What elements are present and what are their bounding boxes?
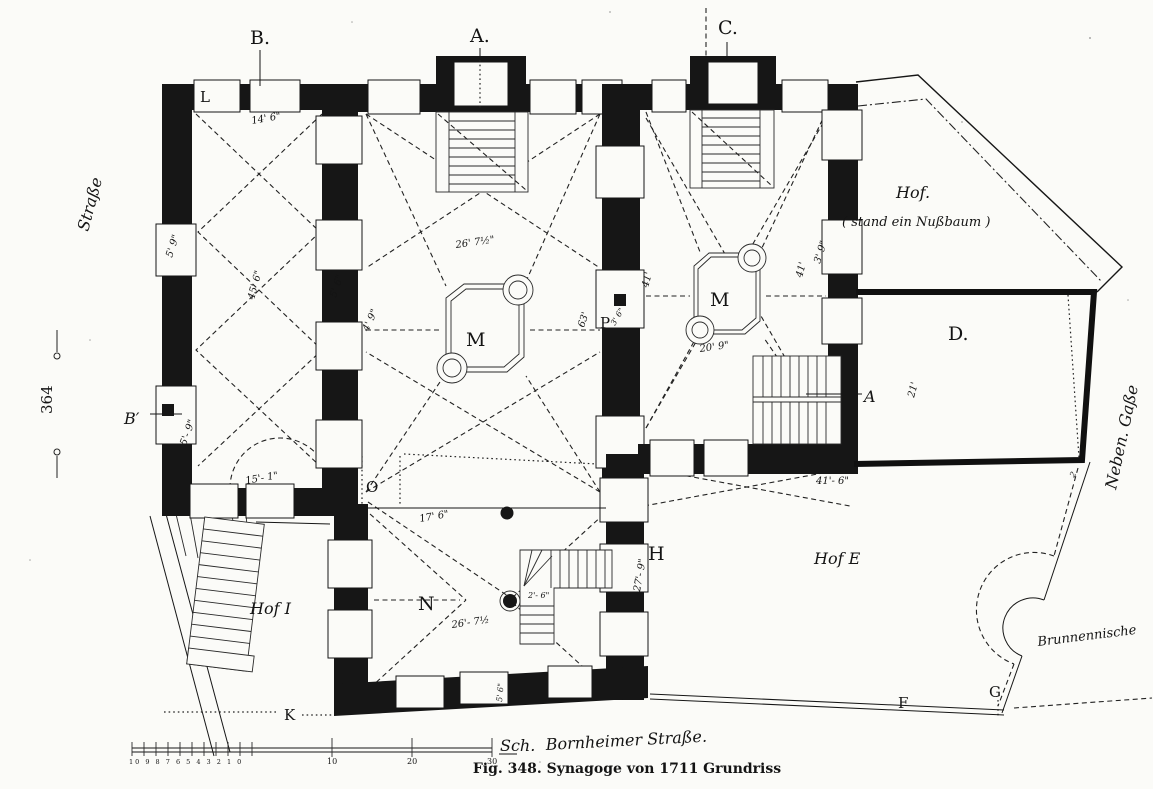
marker-o: O bbox=[366, 478, 378, 496]
window-opening bbox=[396, 676, 444, 708]
window-opening bbox=[316, 322, 362, 370]
gasse-line-lower bbox=[1002, 656, 1022, 713]
window-opening bbox=[548, 666, 592, 698]
entry-c-opening bbox=[708, 62, 758, 104]
window-opening bbox=[704, 440, 748, 476]
marker-k: K bbox=[284, 706, 296, 724]
scale-major-10: 10 bbox=[327, 757, 337, 766]
left-hall-vault-lines bbox=[196, 110, 330, 488]
stair-below-c bbox=[690, 110, 774, 188]
hof-i-label: Hof I bbox=[249, 599, 292, 618]
dim-hof-e-front: 41'- 6" bbox=[815, 476, 849, 487]
scale-unit-label: Sch. bbox=[500, 736, 535, 755]
dim-stair-width: 2'- 6" bbox=[527, 591, 549, 600]
marker-m-east: M bbox=[710, 289, 729, 311]
window-opening bbox=[246, 484, 294, 518]
dim-door-o: 17' 6" bbox=[419, 509, 450, 525]
stair-hof-i bbox=[187, 517, 271, 672]
marker-stair-a: A bbox=[862, 387, 876, 406]
marker-g: G bbox=[989, 683, 1001, 701]
wall-segment bbox=[334, 504, 368, 690]
marker-m-main: M bbox=[466, 329, 485, 351]
gasse-dashed-upper bbox=[1054, 468, 1078, 556]
section-marker-c: C. bbox=[718, 17, 738, 39]
dim-room-d: 21' bbox=[906, 381, 921, 400]
marker-f: F bbox=[898, 694, 908, 712]
dim-east-diag-e: 41' bbox=[794, 261, 809, 280]
west-hall-walls bbox=[156, 80, 362, 518]
marker-h: H bbox=[648, 543, 665, 565]
dim-room-n-diagonal: 26'- 7½ bbox=[450, 615, 490, 631]
hof-e-label: Hof E bbox=[813, 549, 861, 568]
page-number: 364 bbox=[38, 385, 56, 414]
marker-n: N bbox=[418, 593, 435, 615]
column-post bbox=[503, 594, 517, 608]
window-opening bbox=[822, 298, 862, 344]
street-edge-dashed bbox=[1014, 698, 1152, 708]
entry-a-opening bbox=[454, 62, 508, 106]
bimah-column bbox=[437, 353, 467, 383]
dim-main-length: 63' bbox=[576, 311, 591, 329]
stair-below-a bbox=[436, 112, 528, 192]
bimah-column bbox=[738, 244, 766, 272]
room-d-outline bbox=[854, 292, 1094, 464]
scale-minor-ticks bbox=[132, 742, 252, 756]
wall-segment bbox=[162, 84, 192, 514]
vault-zigzag-2 bbox=[198, 114, 322, 466]
room-d-inner-dotted bbox=[1068, 295, 1079, 458]
dim-south-window: 5' 6" bbox=[495, 683, 506, 702]
well-niche-label: Brunnennische bbox=[1036, 623, 1138, 650]
window-opening bbox=[316, 220, 362, 270]
neben-gasse-boundary bbox=[976, 462, 1090, 716]
figure-caption: Fig. 348. Synagoge von 1711 Grundriss bbox=[473, 761, 781, 777]
window-opening bbox=[530, 80, 576, 114]
street-edge-1 bbox=[650, 694, 1004, 710]
bimah-column bbox=[686, 316, 714, 344]
window-opening bbox=[328, 610, 372, 658]
bimah-column bbox=[503, 275, 533, 305]
window-opening bbox=[650, 440, 694, 476]
street-bottom-label: Bornheimer Straße. bbox=[544, 727, 707, 754]
hof-top-dashdot bbox=[858, 99, 1101, 281]
window-opening bbox=[316, 116, 362, 164]
floor-plan-drawing: 10 9 8 7 6 5 4 3 2 1 0 10 20 30 Sch. B. … bbox=[0, 0, 1153, 789]
window-opening bbox=[328, 540, 372, 588]
hof-top-label: Hof. bbox=[895, 183, 930, 202]
dim-main-diagonal: 26' 7½" bbox=[454, 235, 495, 252]
gasse-line-upper bbox=[1044, 462, 1090, 600]
hof-top-note: ( stand ein Nußbaum ) bbox=[842, 215, 990, 230]
dim-top-left-window: 14' 6" bbox=[251, 111, 282, 127]
window-opening bbox=[596, 146, 644, 198]
wall-segment bbox=[162, 84, 334, 110]
column-post bbox=[501, 507, 514, 520]
scale-minor-labels: 10 9 8 7 6 5 4 3 2 1 0 bbox=[129, 758, 243, 766]
window-opening bbox=[250, 80, 300, 112]
section-marker-b: B. bbox=[250, 27, 270, 49]
street-right-label: Neben. Gaße bbox=[1101, 383, 1142, 492]
marker-b-prime: B′ bbox=[123, 409, 140, 428]
window-opening bbox=[652, 80, 686, 112]
room-d-walls bbox=[854, 292, 1094, 464]
scanned-plan-sheet: 10 9 8 7 6 5 4 3 2 1 0 10 20 30 Sch. B. … bbox=[0, 0, 1153, 789]
window-opening bbox=[600, 478, 648, 522]
street-edge-2 bbox=[650, 699, 1004, 715]
window-opening bbox=[822, 110, 862, 160]
section-marker-a: A. bbox=[469, 25, 490, 47]
window-opening bbox=[600, 612, 648, 656]
window-mullion bbox=[614, 294, 626, 306]
marker-l: L bbox=[200, 88, 210, 106]
hof-i-stair-leader bbox=[256, 522, 330, 524]
dim-left-hall-length: 45' 6" bbox=[246, 269, 265, 301]
window-opening bbox=[190, 484, 238, 518]
scale-major-20: 20 bbox=[407, 757, 417, 766]
street-left-label: Straße bbox=[74, 175, 107, 233]
marker-d: D. bbox=[948, 323, 969, 345]
window-opening bbox=[368, 80, 420, 114]
bornheimer-strasse-edge bbox=[164, 694, 1152, 715]
window-opening bbox=[782, 80, 828, 112]
window-opening bbox=[316, 420, 362, 468]
